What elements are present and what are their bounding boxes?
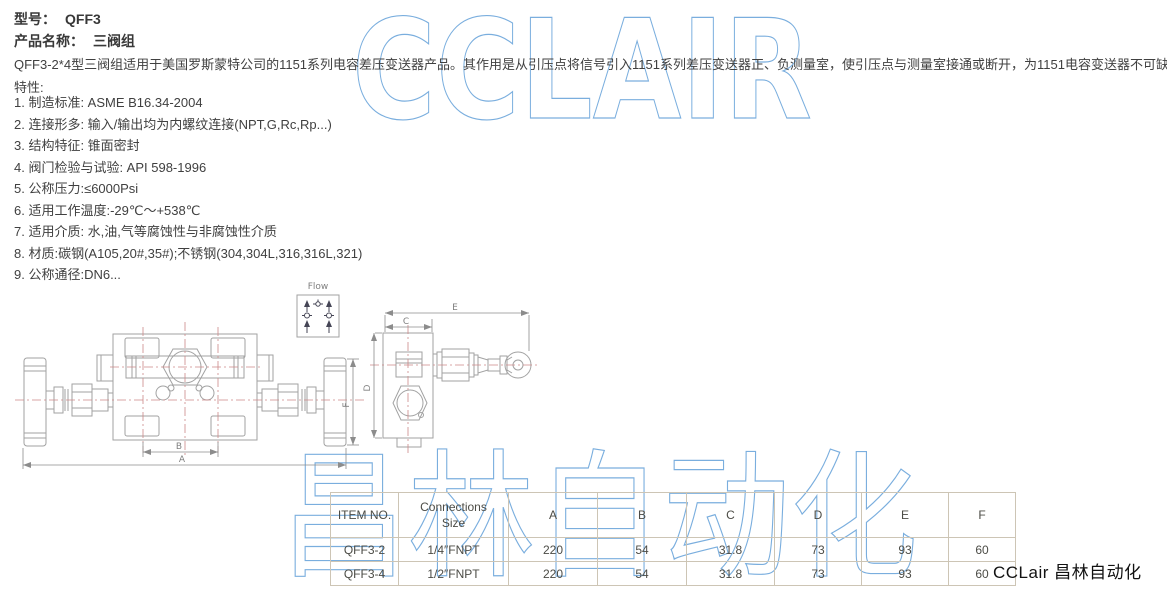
feature-item: 1. 制造标准: ASME B16.34-2004	[14, 92, 362, 114]
table-cell: 31.8	[687, 538, 775, 562]
table-cell: 93	[862, 538, 949, 562]
col-header-a: A	[509, 493, 598, 538]
feature-item: 6. 适用工作温度:-29℃～+538℃	[14, 200, 362, 222]
table-cell: 220	[509, 562, 598, 586]
centerlines	[15, 322, 538, 458]
feature-item: 3. 结构特征: 锥面密封	[14, 135, 362, 157]
table-cell: 54	[598, 562, 687, 586]
dim-label-d: D	[363, 384, 373, 391]
table-cell: 220	[509, 538, 598, 562]
technical-drawing: Flow B A F E C D	[15, 275, 695, 495]
product-name-line: 产品名称：三阀组	[14, 31, 135, 51]
product-name-value: 三阀组	[93, 33, 135, 49]
col-header-connections-size: Connections Size	[399, 493, 509, 538]
dim-label-e: E	[452, 303, 458, 313]
model-line: 型号：QFF3	[14, 9, 101, 29]
feature-item: 5. 公称压力:≤6000Psi	[14, 178, 362, 200]
flow-label: Flow	[308, 282, 329, 292]
feature-item: 4. 阀门检验与试验: API 598-1996	[14, 157, 362, 179]
dim-label-a: A	[179, 455, 186, 465]
table-row: QFF3-2 1/4″FNPT 220 54 31.8 73 93 60	[331, 538, 1016, 562]
dimension-lines	[23, 313, 529, 469]
table-cell: 73	[775, 538, 862, 562]
table-cell: 31.8	[687, 562, 775, 586]
model-value: QFF3	[65, 11, 101, 27]
dim-label-c: C	[403, 317, 409, 327]
table-cell: 1/4″FNPT	[399, 538, 509, 562]
feature-item: 7. 适用介质: 水,油,气等腐蚀性与非腐蚀性介质	[14, 221, 362, 243]
features-list: 1. 制造标准: ASME B16.34-2004 2. 连接形多: 输入/输出…	[14, 92, 362, 286]
valve-outline	[24, 295, 531, 447]
col-header-d: D	[775, 493, 862, 538]
col-header-e: E	[862, 493, 949, 538]
col-header-c: C	[687, 493, 775, 538]
product-description: QFF3-2*4型三阀组适用于美国罗斯蒙特公司的1151系列电容差压变送器产品。…	[14, 54, 1167, 73]
table-row: QFF3-4 1/2″FNPT 220 54 31.8 73 93 60	[331, 562, 1016, 586]
col-header-item-no: ITEM NO.	[331, 493, 399, 538]
table-cell: 1/2″FNPT	[399, 562, 509, 586]
feature-item: 8. 材质:碳钢(A105,20#,35#);不锈钢(304,304L,316,…	[14, 243, 362, 265]
content: 型号：QFF3 产品名称：三阀组 QFF3-2*4型三阀组适用于美国罗斯蒙特公司…	[0, 0, 1167, 593]
model-label: 型号：	[14, 11, 56, 27]
table-cell: 93	[862, 562, 949, 586]
product-name-label: 产品名称：	[14, 33, 84, 49]
dim-label-b: B	[176, 442, 182, 452]
product-page: CCLAIR 昌林自动化 型号：QFF3 产品名称：三阀组 QFF3-2*4型三…	[0, 0, 1167, 593]
table-cell: 54	[598, 538, 687, 562]
table-cell: 73	[775, 562, 862, 586]
table-cell: QFF3-4	[331, 562, 399, 586]
table-cell: QFF3-2	[331, 538, 399, 562]
dim-label-f: F	[342, 402, 352, 407]
col-header-b: B	[598, 493, 687, 538]
table-header-row: ITEM NO. Connections Size A B C D E F	[331, 493, 1016, 538]
feature-item: 2. 连接形多: 输入/输出均为内螺纹连接(NPT,G,Rc,Rp...)	[14, 114, 362, 136]
col-header-f: F	[949, 493, 1016, 538]
dimensions-table: ITEM NO. Connections Size A B C D E F QF…	[330, 492, 1016, 586]
footer-logo: CCLair 昌林自动化	[993, 558, 1142, 583]
